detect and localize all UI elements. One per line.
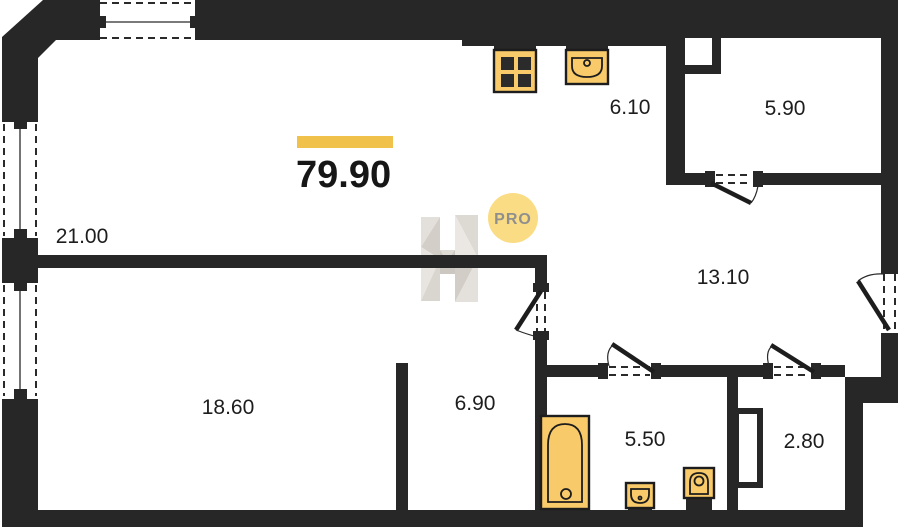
wall [881,333,898,341]
floor-plan-svg: 79.90 21.00 6.10 5.90 13.10 18.60 6.90 5… [0,0,900,527]
wall [535,268,547,283]
kitchen-sink-icon [566,42,608,84]
room-label-living: 21.00 [56,225,109,248]
wall [666,38,685,185]
door-storage [763,345,821,379]
wall [821,365,845,377]
room-label-wardrobe: 5.90 [765,97,806,120]
accent-bar [297,136,393,148]
toilet-icon [684,468,714,512]
wall [763,173,881,185]
door-living [516,283,549,340]
door-leaf [711,183,751,203]
wall [396,363,408,510]
pro-badge-label: PRO [494,211,532,228]
wall [2,0,100,122]
wall [195,0,462,40]
wall [547,365,600,377]
wall [678,65,721,74]
wall [661,365,763,377]
area-summary: 79.90 [296,136,393,196]
window-left-lower [4,281,36,399]
room-label-storage: 2.80 [784,430,825,453]
room-label-kitchen: 6.10 [610,96,651,119]
bathtub-icon [541,416,589,509]
niche-inner [739,414,757,482]
room-label-hallway: 13.10 [697,266,750,289]
pro-badge: PRO [488,193,538,243]
wall [666,173,707,185]
total-area-label: 79.90 [296,154,391,196]
washbasin-icon [626,483,654,514]
wall [712,38,721,66]
wall [2,399,38,510]
window-top [96,3,200,38]
wall [845,377,863,517]
stove-icon [494,42,536,92]
wall [38,255,547,268]
wall [462,0,677,46]
wall [863,377,898,403]
door-bathroom [598,344,661,379]
door-balcony [858,274,895,333]
wall [677,0,898,38]
door-wardrobe [705,171,763,203]
room-label-study: 6.90 [455,392,496,415]
window-left-upper [4,119,36,239]
wall [881,38,898,266]
room-label-bedroom: 18.60 [202,396,255,419]
wall [881,266,898,274]
wall [2,238,38,283]
room-label-bathroom: 5.50 [625,428,666,451]
floor-plan: 79.90 21.00 6.10 5.90 13.10 18.60 6.90 5… [0,0,900,527]
walls [2,0,898,527]
